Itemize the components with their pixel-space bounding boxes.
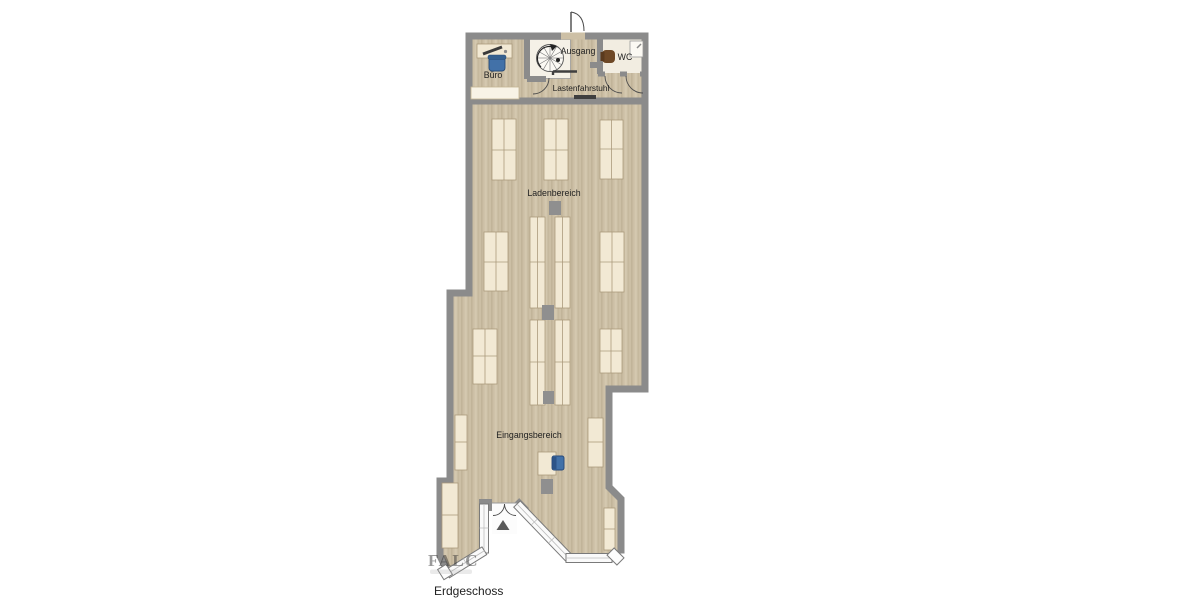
shelf-row3-right: [600, 329, 622, 373]
floorplan-page: FALC Büro Ausgang WC Lastenfahrstuhl Lad…: [0, 0, 1200, 600]
spiral-staircase: [537, 44, 564, 72]
shelf-entry-left-wall: [455, 415, 467, 470]
storefront-window-left-vertical: [480, 504, 489, 553]
label-lastenfahrstuhl: Lastenfahrstuhl: [553, 83, 610, 93]
stair-arrow-dot: [556, 58, 560, 62]
watermark: FALC: [428, 551, 479, 574]
shelf-row1-right: [600, 120, 623, 179]
label-wc: WC: [618, 52, 633, 62]
mouse-icon: [504, 50, 507, 53]
label-ausgang: Ausgang: [561, 46, 596, 56]
pillar-2: [542, 305, 554, 320]
floor-title: Erdgeschoss: [434, 584, 503, 598]
storefront-window-bottom: [566, 554, 612, 563]
toilet-tank: [601, 52, 605, 61]
ausgang-door-arc: [571, 12, 584, 31]
pillar-4: [541, 479, 553, 494]
cash-register-screen: [553, 457, 557, 469]
buero-sideboard: [471, 87, 519, 99]
shelf-row2-right: [600, 232, 624, 292]
ausgang-door-opening: [561, 33, 585, 40]
gondola-shelf-4: [555, 320, 570, 405]
watermark-subline: [430, 570, 472, 575]
label-eingangsbereich: Eingangsbereich: [496, 430, 562, 440]
gondola-shelf-3: [530, 320, 545, 405]
watermark-text: FALC: [428, 551, 479, 570]
shop-entry-door-marker: [574, 95, 596, 99]
shelf-entry-right-lower: [604, 508, 615, 550]
office-chair-back: [488, 55, 506, 60]
label-ladenbereich: Ladenbereich: [527, 188, 580, 198]
label-buero: Büro: [484, 70, 503, 80]
shelf-row1-left: [492, 119, 516, 180]
shelf-entry-lower-left: [442, 483, 458, 548]
gondola-shelf-2: [555, 217, 570, 308]
gondola-shelf-1: [530, 217, 545, 308]
shelf-entry-right-wall: [588, 418, 603, 467]
shelf-row1-mid: [544, 119, 568, 180]
shelf-row3-left: [473, 329, 497, 384]
floor-plan: FALC Büro Ausgang WC Lastenfahrstuhl Lad…: [0, 0, 1200, 600]
shelf-row2-left: [484, 232, 508, 291]
pillar-3: [543, 391, 554, 404]
pillar-1: [549, 201, 561, 215]
